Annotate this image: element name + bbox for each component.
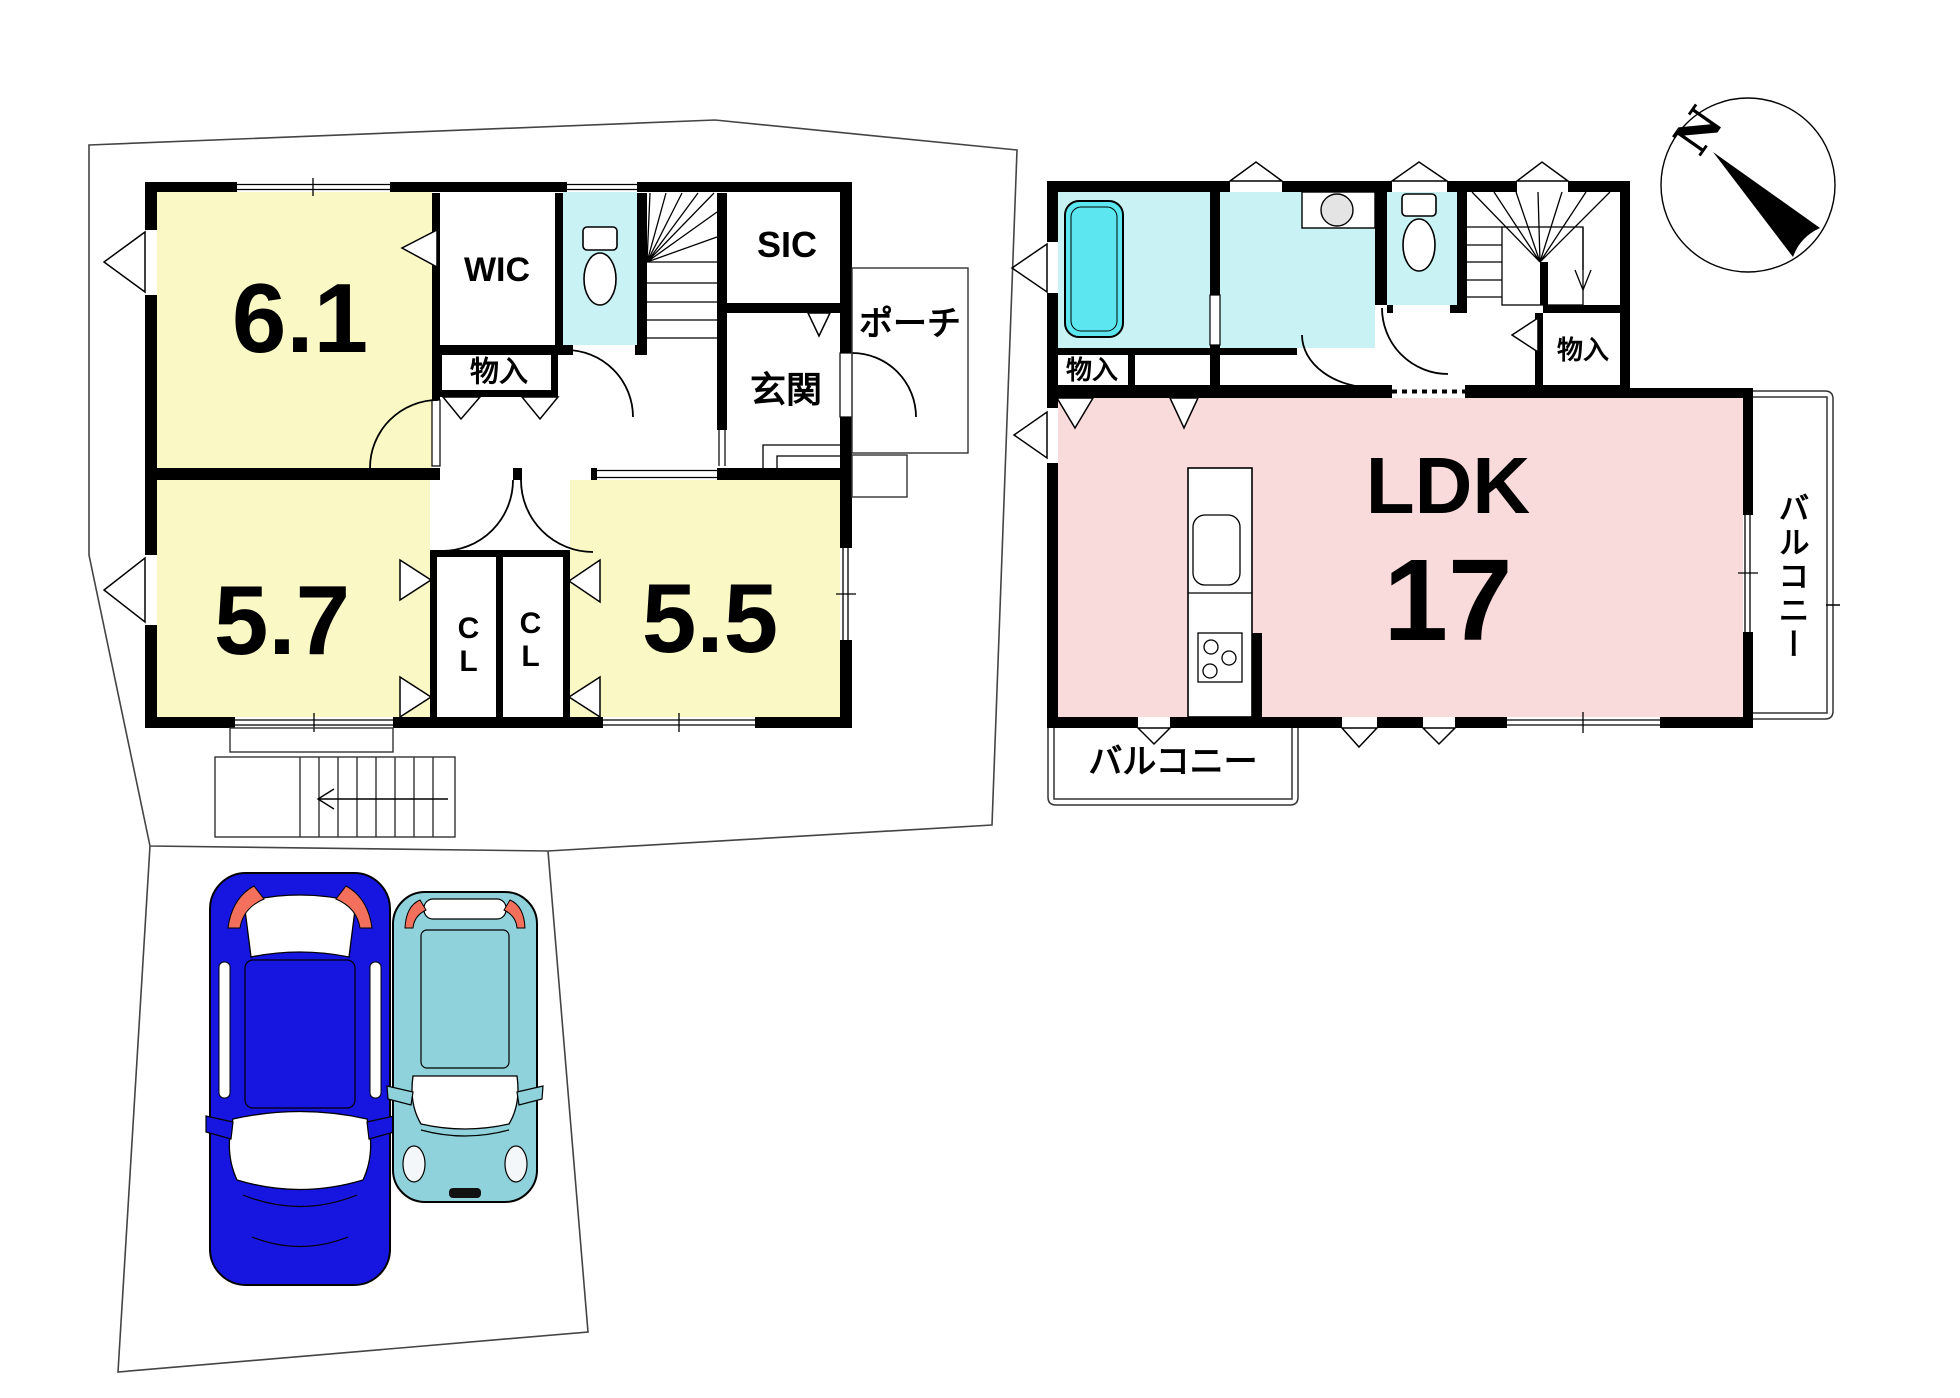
door-leaf [432, 400, 440, 466]
exterior-stairs [215, 757, 455, 837]
ldk-size-label: 17 [1383, 542, 1512, 658]
window-mark [1138, 728, 1170, 744]
casement-window-icon [1014, 412, 1047, 458]
car-rear-window [424, 899, 506, 919]
balcony-bottom-label: バルコニー [1088, 745, 1257, 779]
car-headlight-icon [505, 1146, 527, 1182]
car-grille [449, 1188, 481, 1198]
car-teal [387, 892, 543, 1202]
porch-label: ポーチ [859, 307, 961, 341]
closet-right-label: CL [515, 607, 545, 673]
balcony-side-label: バルコニー [1776, 492, 1807, 662]
toilet-icon [1402, 194, 1436, 271]
storage-2f-left-label: 物入 [1066, 357, 1118, 383]
bath-door-leaf [1210, 295, 1220, 345]
toilet-icon [583, 227, 617, 305]
stove-icon [1198, 633, 1242, 682]
storage-1f-label: 物入 [470, 359, 528, 388]
window-mark [1423, 728, 1455, 744]
entrance-door-arc [852, 353, 916, 417]
car-rear-window [244, 895, 356, 957]
casement-window-icon [104, 558, 145, 622]
awning-window-icon [1517, 162, 1568, 181]
car-windshield [412, 1076, 518, 1129]
casement-window-icon [1012, 244, 1047, 292]
car-windshield [229, 1112, 370, 1190]
room-5-5-label: 5.5 [642, 569, 778, 667]
wash-basin-icon [1302, 192, 1375, 228]
terrace-step [230, 728, 393, 752]
wic-label: WIC [464, 253, 530, 287]
car-blue [206, 873, 394, 1285]
storage-2f-right-label: 物入 [1557, 337, 1609, 363]
porch [852, 268, 968, 497]
floor-plan-page: 6.1 WIC 物入 SIC ポーチ 玄関 5.7 CL CL 5.5 物入 物… [0, 0, 1960, 1398]
car-headlight-icon [403, 1146, 425, 1182]
room-6-1-label: 6.1 [232, 269, 368, 367]
kitchen-sink-icon [1193, 515, 1240, 585]
awning-window-icon [1392, 162, 1447, 181]
ldk-label: LDK [1366, 446, 1530, 526]
kitchen-counter [1188, 468, 1252, 717]
entrance-label: 玄関 [750, 372, 822, 408]
floor-plan-drawing [0, 0, 1960, 1398]
sic-label: SIC [757, 227, 817, 263]
closet-left-label: CL [453, 612, 483, 678]
bathtub-icon [1065, 201, 1123, 337]
casement-window-icon [104, 232, 145, 292]
entrance-door-leaf [840, 353, 852, 417]
window-mark [1342, 728, 1377, 747]
room-5-7-label: 5.7 [214, 571, 350, 669]
awning-window-icon [1230, 162, 1282, 181]
